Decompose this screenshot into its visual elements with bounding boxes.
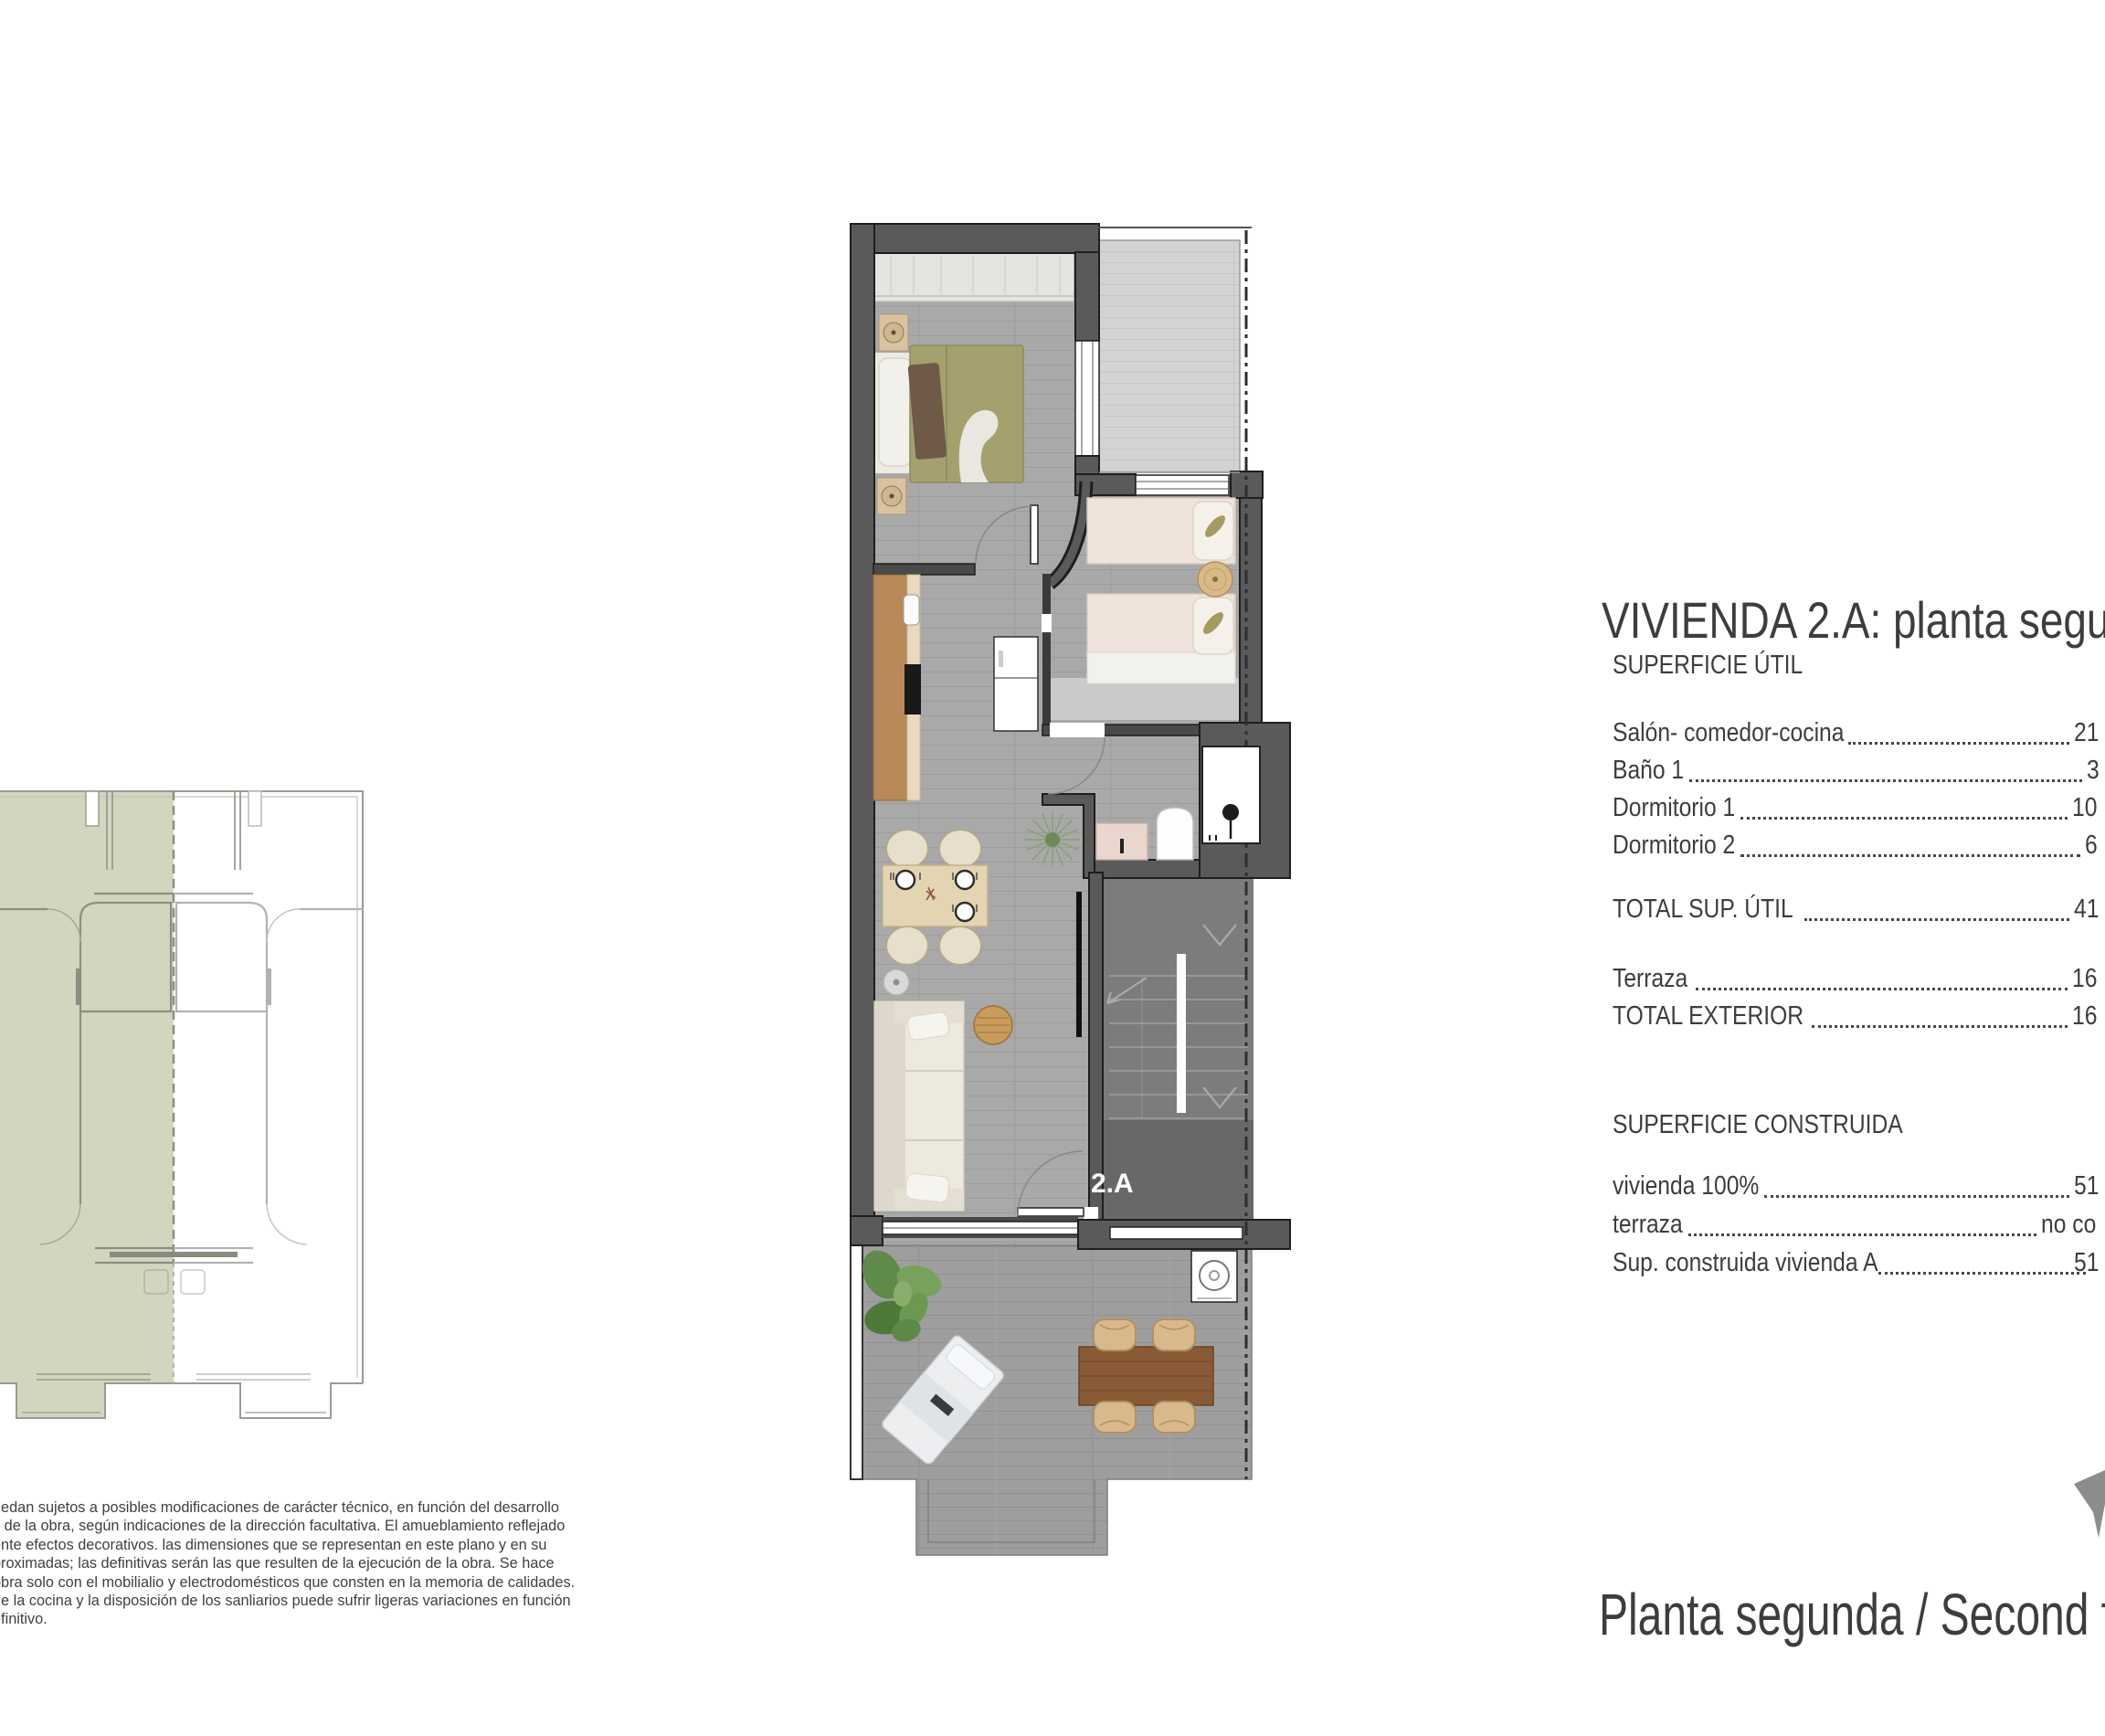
svg-text:2.A: 2.A bbox=[1091, 1169, 1134, 1199]
